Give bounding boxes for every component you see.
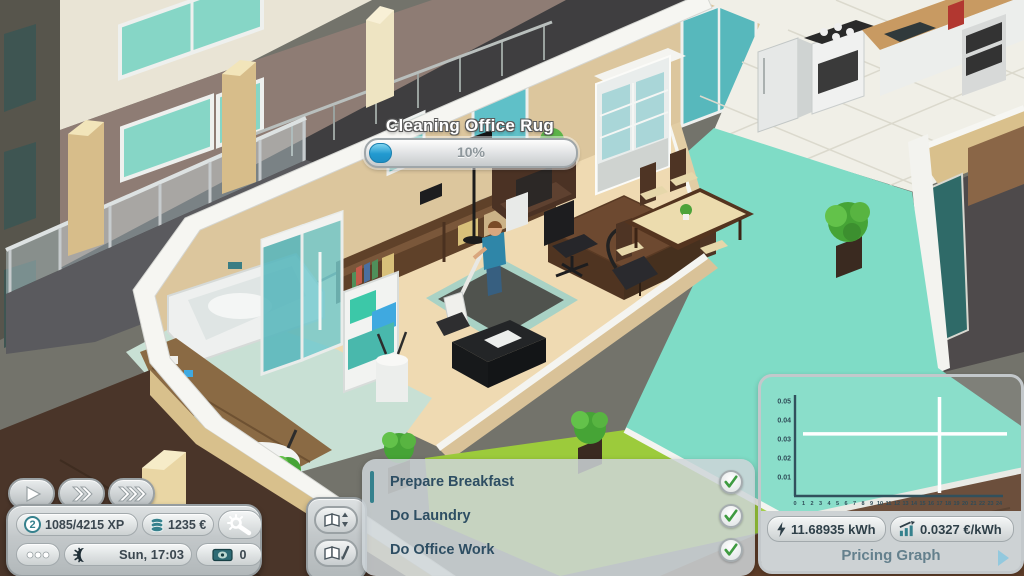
- pricing-label-row: Pricing Graph: [761, 547, 1021, 565]
- svg-text:0.05: 0.05: [777, 399, 791, 406]
- level-badge: 2: [24, 516, 41, 533]
- svg-text:4: 4: [827, 501, 831, 507]
- task-label: Do Office Work: [390, 542, 494, 558]
- pricing-graph-title: Pricing Graph: [841, 547, 940, 564]
- triangle-right-icon[interactable]: [998, 550, 1009, 566]
- task-row[interactable]: Prepare Breakfast: [390, 469, 743, 495]
- xp-pill: 2 1085/4215 XP: [16, 513, 138, 536]
- task-scrollbar[interactable]: [370, 471, 374, 503]
- lightning-bolt-icon: [775, 521, 787, 538]
- sun-moon-icon: [72, 547, 92, 563]
- y-axis-ticks: 0.010.020.030.040.05: [777, 399, 791, 482]
- svg-text:15: 15: [919, 501, 925, 507]
- svg-text:20: 20: [962, 501, 968, 507]
- time-pill: Sun, 17:03: [64, 543, 192, 566]
- wrench-gear-icon: [227, 514, 253, 536]
- time-value: Sun, 17:03: [119, 547, 184, 562]
- rent-pill: 0: [196, 543, 262, 566]
- svg-text:22: 22: [979, 501, 985, 507]
- task-list-panel: Prepare Breakfast Do Laundry Do Office W…: [362, 459, 755, 576]
- svg-text:3: 3: [819, 501, 822, 507]
- svg-text:6: 6: [844, 501, 847, 507]
- energy-consumption-pill: 11.68935 kWh: [767, 516, 886, 542]
- trend-chart-icon: [898, 521, 916, 537]
- svg-text:2: 2: [810, 501, 813, 507]
- svg-text:0.04: 0.04: [777, 418, 791, 425]
- progress-percent: 10%: [366, 140, 576, 166]
- svg-text:10: 10: [877, 501, 883, 507]
- fastest-forward-icon: [116, 483, 148, 505]
- energy-rate-pill: 0.0327 €/kWh: [890, 516, 1014, 542]
- energy-rate-value: 0.0327 €/kWh: [920, 522, 1002, 537]
- svg-text:18: 18: [945, 501, 951, 507]
- svg-text:16: 16: [928, 501, 934, 507]
- action-title: Cleaning Office Rug: [330, 116, 610, 136]
- check-icon: [723, 509, 739, 523]
- task-row[interactable]: Do Office Work: [390, 537, 743, 563]
- task-done-check[interactable]: [719, 538, 743, 562]
- coin-stack-icon: [150, 517, 164, 532]
- edit-tasks-button[interactable]: [314, 539, 358, 567]
- svg-text:12: 12: [894, 501, 900, 507]
- reorder-tasks-button[interactable]: [314, 506, 358, 534]
- game-screen: Cleaning Office Rug 10% 2 1085/4215 XP 1…: [0, 0, 1024, 576]
- more-options-button[interactable]: [16, 543, 60, 566]
- svg-text:19: 19: [953, 501, 959, 507]
- fast-forward-icon: [68, 483, 96, 505]
- energy-consumption-value: 11.68935 kWh: [791, 522, 876, 537]
- svg-text:21: 21: [970, 501, 976, 507]
- rent-counter: 0: [240, 548, 247, 562]
- pricing-chart: 0.010.020.030.040.05 0123456789101112131…: [763, 381, 1013, 509]
- shower-stall[interactable]: [262, 212, 342, 374]
- x-axis-ticks: 0123456789101112131415161718192021222324: [793, 501, 1003, 507]
- svg-text:1: 1: [802, 501, 805, 507]
- svg-text:14: 14: [911, 501, 918, 507]
- check-icon: [723, 543, 739, 557]
- svg-text:5: 5: [836, 501, 839, 507]
- svg-text:0: 0: [793, 501, 796, 507]
- banknote-icon: [212, 548, 233, 562]
- ellipsis-icon: [25, 550, 51, 560]
- task-done-check[interactable]: [719, 470, 743, 494]
- character-body: [482, 232, 506, 270]
- svg-text:0.02: 0.02: [777, 456, 791, 463]
- task-label: Prepare Breakfast: [390, 474, 514, 490]
- svg-text:23: 23: [987, 501, 993, 507]
- pricing-footer: 11.68935 kWh 0.0327 €/kWh Pricing Graph: [761, 511, 1021, 571]
- svg-text:17: 17: [936, 501, 942, 507]
- bath-faucet: [228, 262, 242, 269]
- svg-text:13: 13: [902, 501, 908, 507]
- svg-text:24: 24: [996, 501, 1003, 507]
- play-icon: [19, 483, 45, 505]
- svg-text:0.01: 0.01: [777, 475, 791, 482]
- pricing-graph-panel: 0.010.020.030.040.05 0123456789101112131…: [758, 374, 1024, 574]
- svg-text:7: 7: [853, 501, 856, 507]
- task-done-check[interactable]: [719, 504, 743, 528]
- book-pencil-icon: [322, 544, 350, 562]
- svg-text:0.03: 0.03: [777, 437, 791, 444]
- action-progress-bar: 10%: [364, 138, 578, 168]
- book-sort-icon: [322, 511, 350, 529]
- task-row[interactable]: Do Laundry: [390, 503, 743, 529]
- status-panel: 2 1085/4215 XP 1235 €: [6, 504, 262, 576]
- svg-text:9: 9: [870, 501, 873, 507]
- money-pill: 1235 €: [142, 513, 214, 536]
- task-list-tools: [306, 497, 367, 576]
- money-value: 1235 €: [168, 518, 206, 532]
- svg-text:8: 8: [861, 501, 864, 507]
- task-label: Do Laundry: [390, 508, 471, 524]
- settings-button[interactable]: [218, 510, 262, 539]
- svg-text:11: 11: [886, 501, 892, 507]
- check-icon: [723, 475, 739, 489]
- xp-value: 1085/4215 XP: [45, 518, 124, 532]
